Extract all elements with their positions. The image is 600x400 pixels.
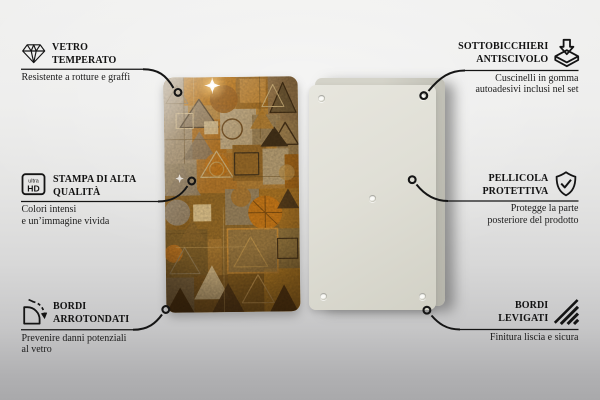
svg-text:HD: HD [27,184,39,194]
